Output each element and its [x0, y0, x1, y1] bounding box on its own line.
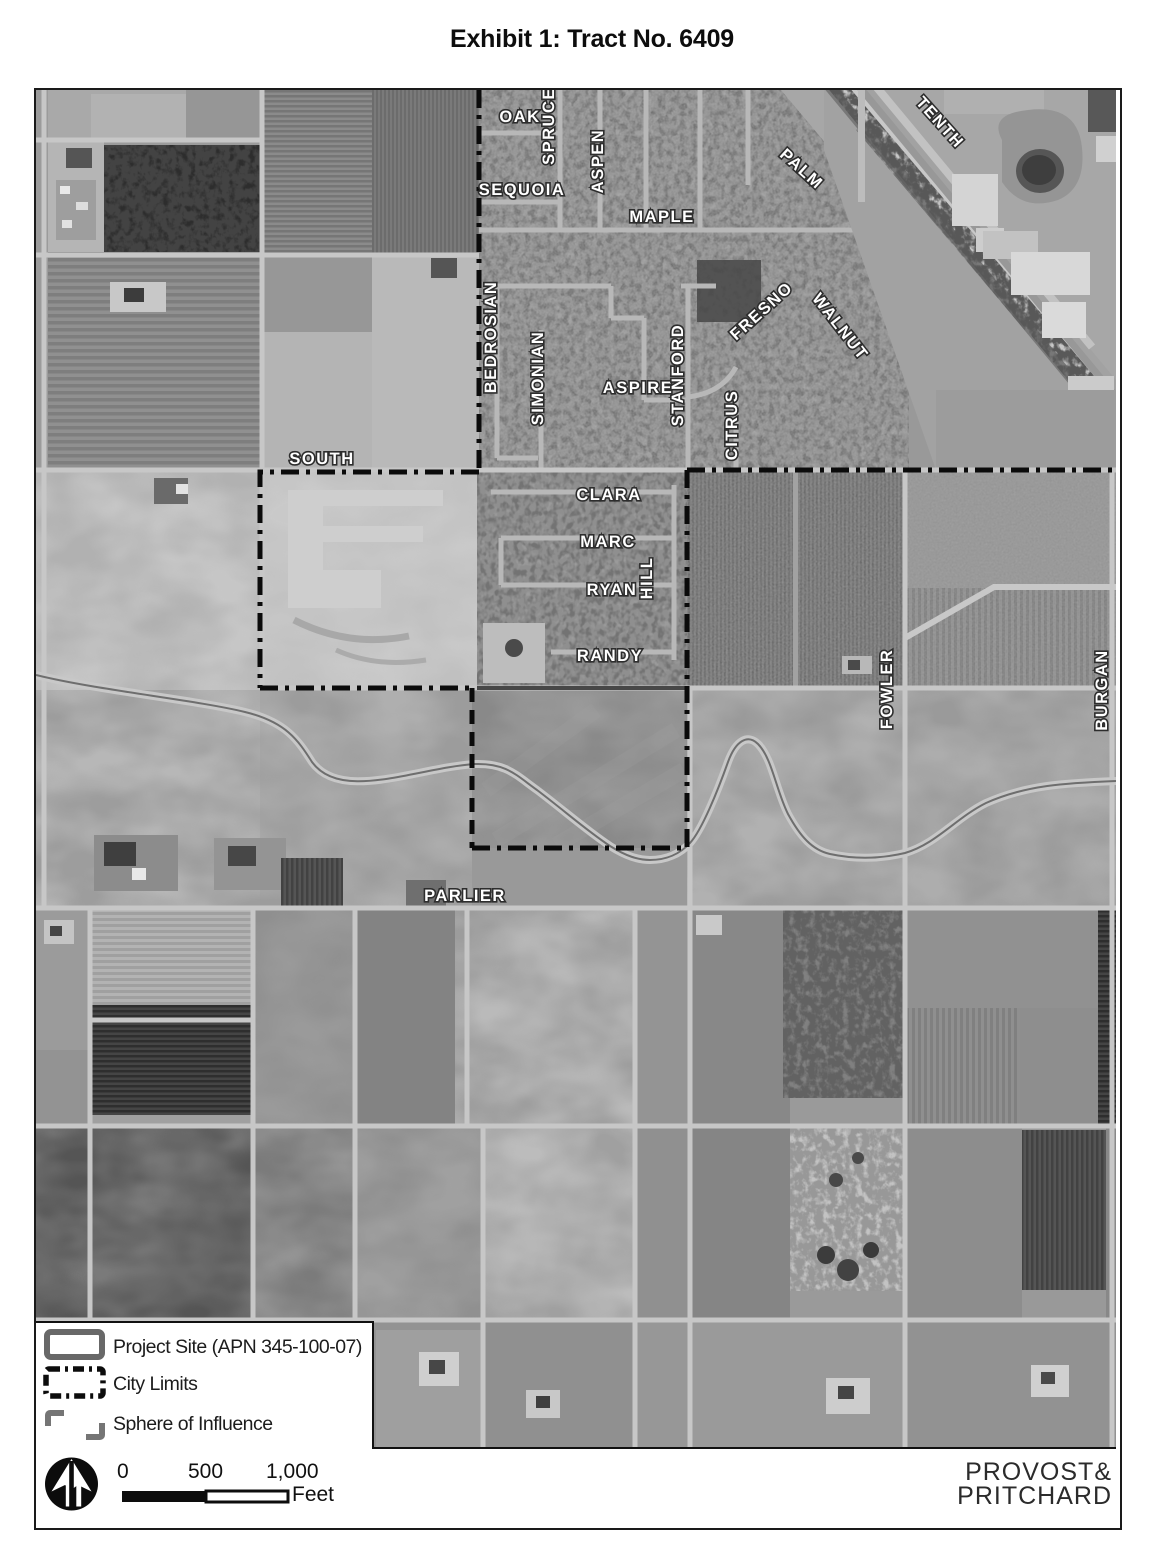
svg-text:MARC: MARC: [580, 533, 636, 551]
svg-text:OAK: OAK: [499, 108, 540, 126]
svg-text:ASPEN: ASPEN: [589, 129, 607, 193]
svg-text:SPRUCE: SPRUCE: [540, 90, 558, 165]
svg-text:MAPLE: MAPLE: [629, 208, 694, 226]
svg-text:PARLIER: PARLIER: [424, 887, 506, 905]
svg-text:HILL: HILL: [638, 557, 656, 600]
svg-text:STANFORD: STANFORD: [669, 324, 687, 426]
svg-text:ASPIRE: ASPIRE: [603, 379, 673, 397]
svg-text:RYAN: RYAN: [587, 581, 638, 599]
svg-text:BURGAN: BURGAN: [1093, 649, 1111, 730]
svg-text:CLARA: CLARA: [576, 486, 641, 504]
svg-text:SEQUOIA: SEQUOIA: [479, 181, 566, 199]
svg-text:FOWLER: FOWLER: [878, 649, 896, 730]
svg-text:SIMONIAN: SIMONIAN: [529, 331, 547, 426]
svg-text:CITRUS: CITRUS: [723, 390, 741, 460]
svg-text:RANDY: RANDY: [577, 647, 643, 665]
svg-text:BEDROSIAN: BEDROSIAN: [482, 281, 500, 394]
svg-text:SOUTH: SOUTH: [289, 450, 354, 468]
